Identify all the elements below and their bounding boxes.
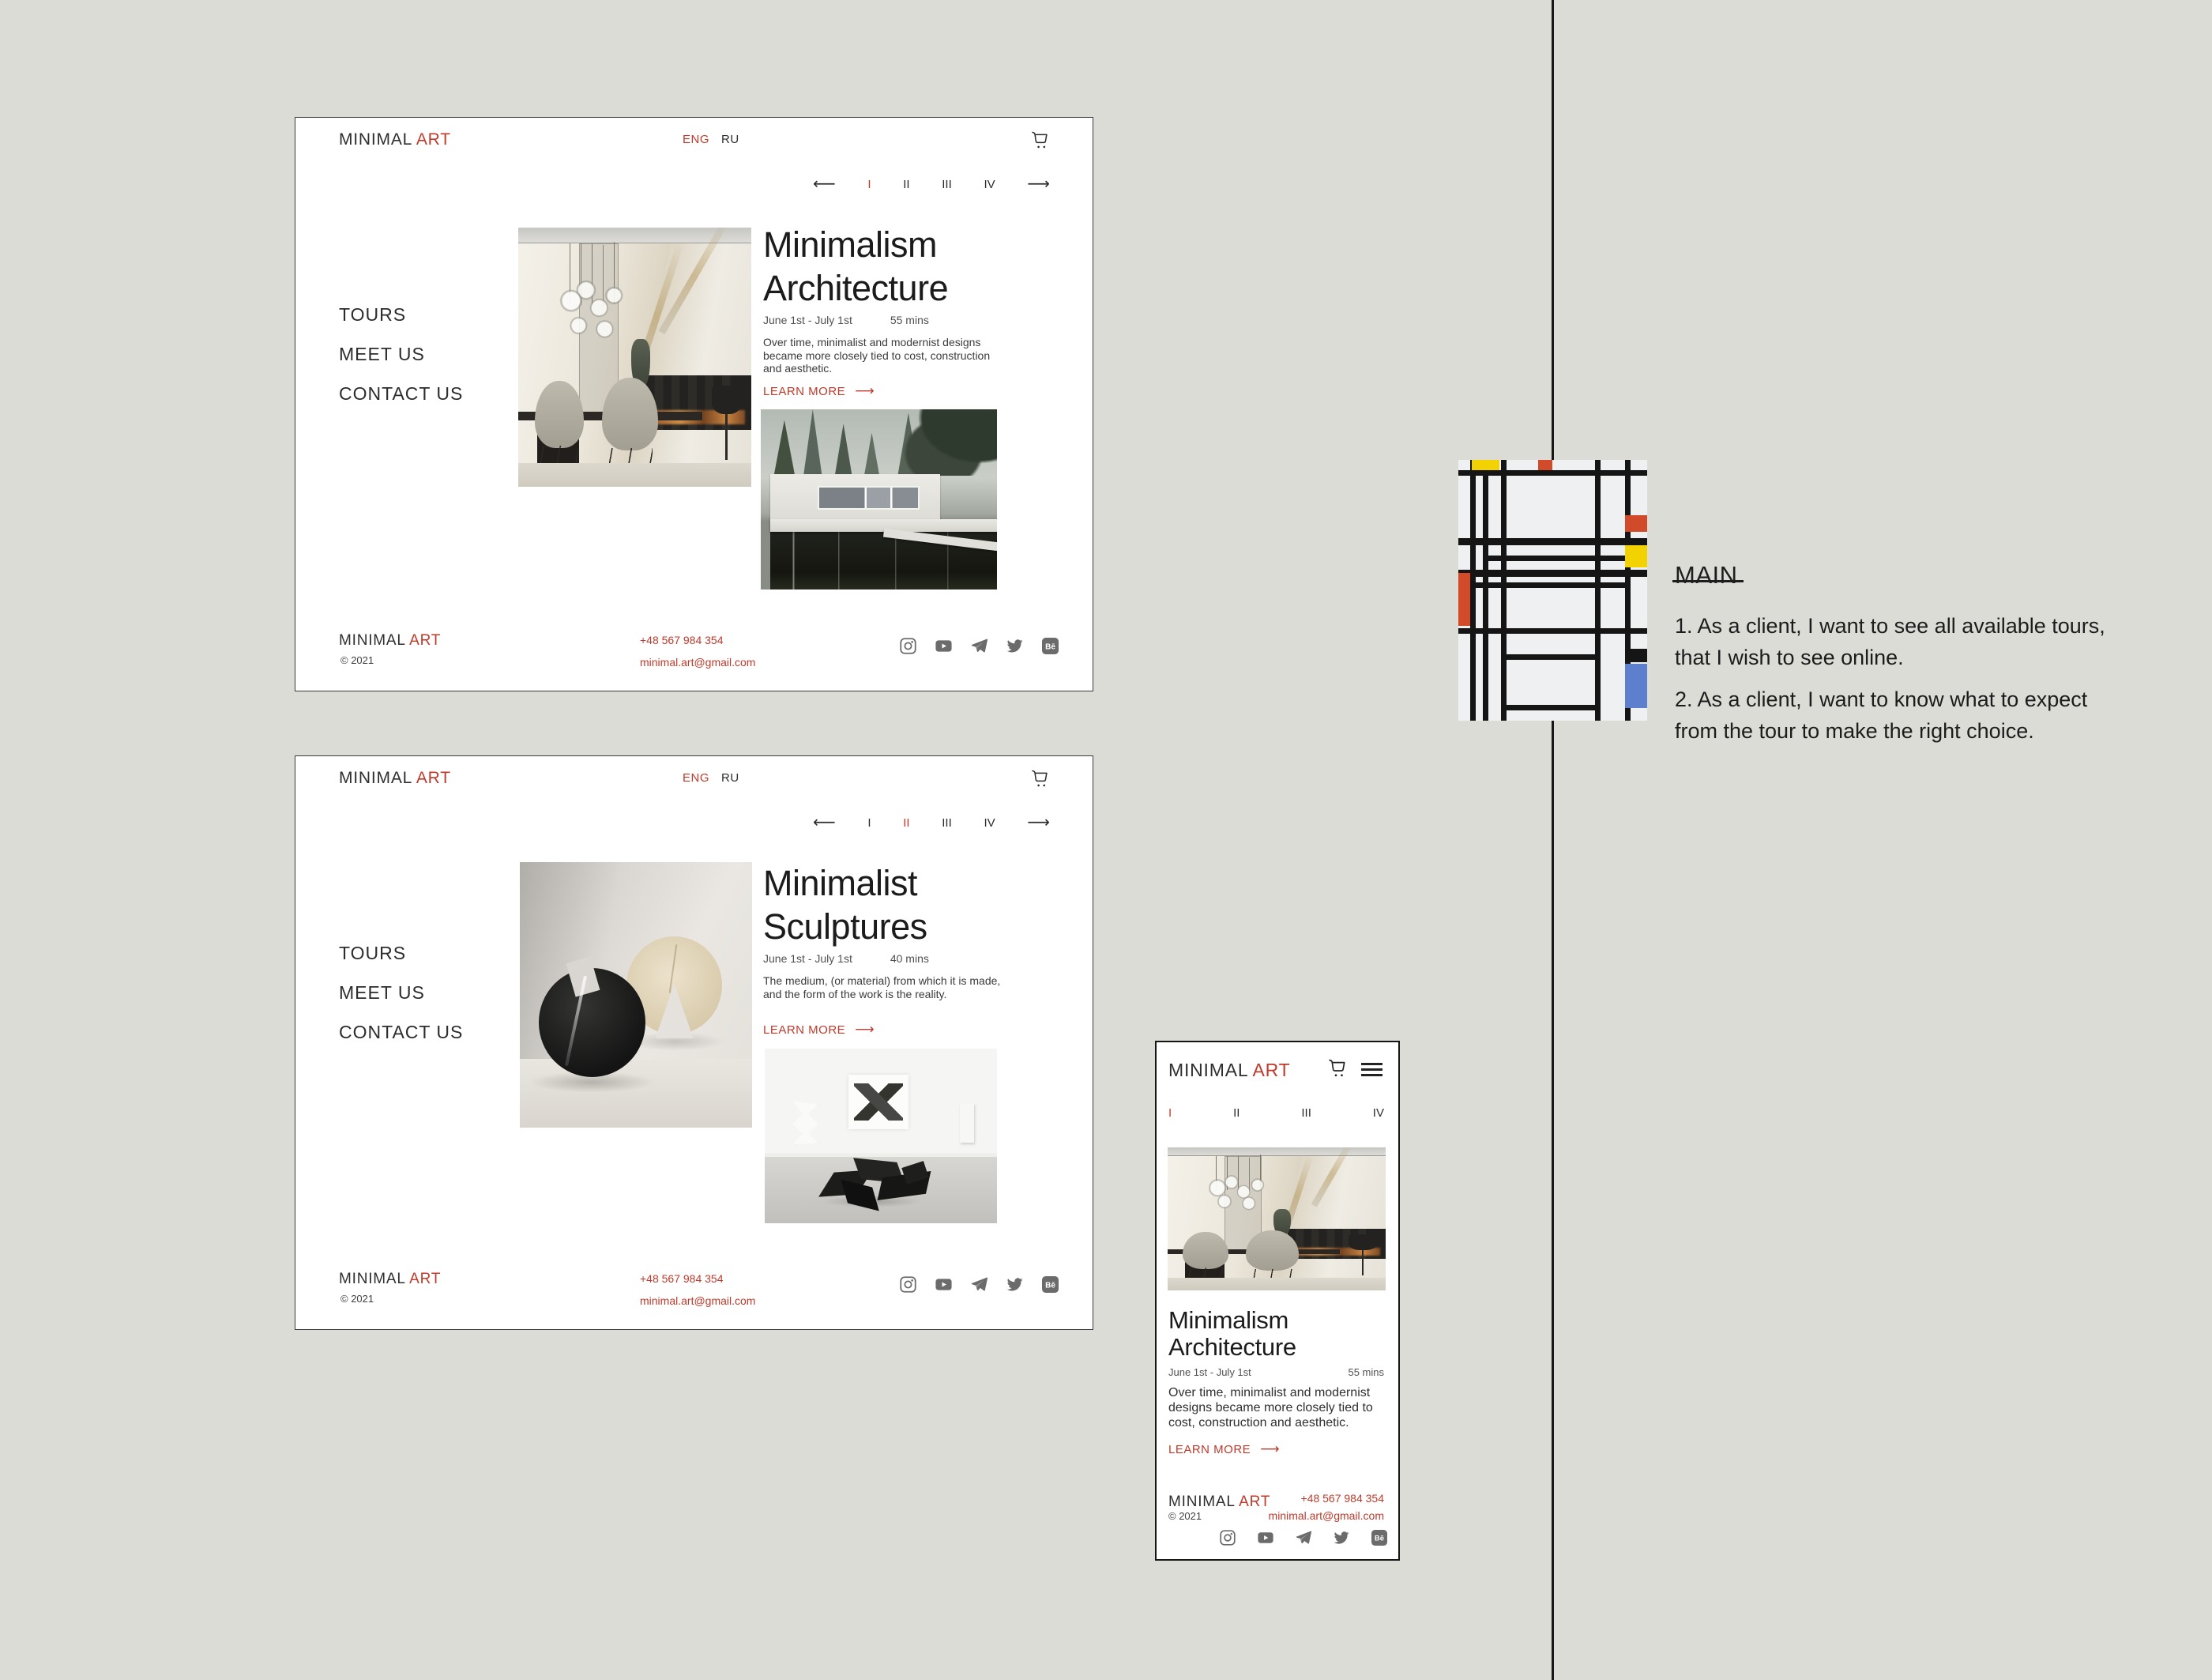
nav-contact-us[interactable]: CONTACT US	[339, 383, 463, 405]
svg-text:Bē: Bē	[1045, 1281, 1055, 1290]
menu-icon[interactable]	[1361, 1063, 1382, 1076]
svg-text:Bē: Bē	[1375, 1535, 1384, 1543]
page-title: Minimalist Sculptures	[763, 861, 927, 948]
tour-meta: June 1st - July 1st 40 mins	[763, 952, 929, 965]
stool-shape	[712, 386, 742, 414]
painting-orange-block	[1625, 515, 1647, 532]
footer-logo: MINIMAL ART	[339, 1271, 441, 1288]
desktop-mockup-sculptures: MINIMAL ART ENG RU ⟵ I II III IV ⟶ TOURS…	[295, 755, 1093, 1330]
stool-shape	[1349, 1234, 1377, 1250]
learn-more-link[interactable]: LEARN MORE⟶	[1168, 1441, 1280, 1457]
instagram-icon[interactable]	[1220, 1530, 1236, 1546]
logo-primary: MINIMAL	[339, 130, 412, 149]
black-disc-shape	[539, 968, 645, 1077]
cart-icon[interactable]	[1030, 769, 1051, 789]
logo-accent: ART	[416, 130, 451, 149]
nav-tours[interactable]: TOURS	[339, 943, 463, 964]
email-link[interactable]: minimal.art@gmail.com	[640, 656, 755, 669]
chandelier-shape	[551, 274, 644, 363]
instagram-icon[interactable]	[900, 1276, 916, 1293]
wall-artwork-shape	[848, 1075, 908, 1129]
page-iv[interactable]: IV	[984, 178, 995, 191]
date-range: June 1st - July 1st	[1168, 1366, 1251, 1378]
page-ii[interactable]: II	[903, 178, 909, 191]
copyright: © 2021	[340, 1293, 374, 1305]
user-story-1: 1. As a client, I want to see all availa…	[1675, 610, 2129, 673]
user-story-2: 2. As a client, I want to know what to e…	[1675, 684, 2129, 747]
telegram-icon[interactable]	[971, 1276, 987, 1293]
chair-shape	[535, 381, 584, 448]
description: Over time, minimalist and modernist desi…	[763, 336, 1010, 375]
painting-black-block	[1625, 649, 1647, 662]
interior-photo	[1168, 1147, 1386, 1290]
chair-shape	[1183, 1232, 1228, 1269]
youtube-icon[interactable]	[1258, 1530, 1273, 1546]
chandelier-shape	[1198, 1173, 1285, 1222]
copyright: © 2021	[340, 654, 374, 666]
lang-ru[interactable]: RU	[721, 771, 739, 785]
site-logo[interactable]: MINIMAL ART	[1168, 1060, 1291, 1081]
behance-icon[interactable]: Bē	[1042, 1276, 1059, 1293]
note-heading: MAIN	[1675, 561, 2149, 590]
description: Over time, minimalist and modernist desi…	[1168, 1385, 1388, 1430]
twitter-icon[interactable]	[1006, 1276, 1023, 1293]
phone-link[interactable]: +48 567 984 354	[1301, 1492, 1385, 1505]
page-iii[interactable]: III	[942, 178, 952, 191]
page-i[interactable]: I	[867, 816, 871, 830]
svg-text:Bē: Bē	[1045, 642, 1055, 651]
sculpture-photo	[520, 862, 752, 1128]
nav-contact-us[interactable]: CONTACT US	[339, 1022, 463, 1043]
cart-icon[interactable]	[1030, 130, 1051, 150]
language-switcher: ENG RU	[683, 133, 739, 146]
duration: 55 mins	[890, 314, 929, 326]
logo-accent: ART	[416, 769, 451, 787]
artboard-canvas: MINIMAL ART ENG RU ⟵ I II III IV ⟶ TOURS…	[0, 0, 2212, 1680]
behance-icon[interactable]: Bē	[1371, 1530, 1387, 1546]
chair-shape	[1246, 1230, 1298, 1271]
slide-pagination: ⟵ I II III IV ⟶	[813, 816, 1050, 830]
pillar-shape	[960, 1103, 974, 1143]
main-nav: TOURS MEET US CONTACT US	[339, 304, 463, 423]
tour-meta: June 1st - July 1st 55 mins	[763, 314, 929, 326]
gallery-photo	[765, 1049, 997, 1223]
logo-primary: MINIMAL	[1168, 1060, 1248, 1080]
painting-red-block	[1458, 573, 1470, 626]
youtube-icon[interactable]	[935, 638, 952, 654]
slide-pagination: I II III IV	[1168, 1106, 1384, 1120]
house-photo	[761, 409, 997, 590]
canvas-divider-line	[1552, 0, 1554, 1680]
twitter-icon[interactable]	[1334, 1530, 1349, 1546]
prev-arrow-icon[interactable]: ⟵	[813, 816, 836, 830]
twitter-icon[interactable]	[1006, 638, 1023, 654]
phone-link[interactable]: +48 567 984 354	[640, 634, 724, 646]
next-arrow-icon[interactable]: ⟶	[1027, 816, 1050, 830]
copyright: © 2021	[1168, 1510, 1202, 1522]
nav-meet-us[interactable]: MEET US	[339, 982, 463, 1004]
house-shape	[770, 474, 940, 519]
design-note: MAIN 1. As a client, I want to see all a…	[1675, 561, 2149, 747]
cart-icon[interactable]	[1327, 1058, 1349, 1079]
telegram-icon[interactable]	[971, 638, 987, 654]
arrow-right-icon: ⟶	[855, 1022, 875, 1037]
nav-tours[interactable]: TOURS	[339, 304, 463, 326]
mondrian-painting	[1458, 460, 1647, 721]
date-range: June 1st - July 1st	[763, 314, 852, 326]
duration: 40 mins	[890, 952, 929, 965]
language-switcher: ENG RU	[683, 771, 739, 785]
youtube-icon[interactable]	[935, 1276, 952, 1293]
page-iv[interactable]: IV	[1373, 1106, 1384, 1120]
lang-eng[interactable]: ENG	[683, 771, 709, 785]
footer-logo: MINIMAL ART	[1168, 1494, 1270, 1511]
page-iii[interactable]: III	[942, 816, 952, 830]
main-nav: TOURS MEET US CONTACT US	[339, 943, 463, 1061]
social-links: Bē	[900, 638, 1059, 654]
arrow-right-icon: ⟶	[1260, 1441, 1280, 1456]
duration: 55 mins	[1348, 1366, 1384, 1378]
mobile-mockup-architecture: MINIMAL ART I II III IV	[1155, 1041, 1400, 1561]
lang-eng[interactable]: ENG	[683, 133, 709, 146]
page-iii[interactable]: III	[1301, 1106, 1311, 1120]
learn-more-link[interactable]: LEARN MORE⟶	[763, 383, 875, 399]
email-link[interactable]: minimal.art@gmail.com	[640, 1294, 755, 1307]
social-links: Bē	[900, 1276, 1059, 1293]
page-title: Minimalism Architecture	[763, 223, 948, 310]
page-ii[interactable]: II	[903, 816, 909, 830]
foliage-shape	[902, 409, 997, 476]
page-i[interactable]: I	[867, 178, 871, 191]
next-arrow-icon[interactable]: ⟶	[1027, 178, 1050, 191]
painting-blue-block	[1625, 664, 1647, 708]
desktop-mockup-architecture: MINIMAL ART ENG RU ⟵ I II III IV ⟶ TOURS…	[295, 117, 1093, 691]
footer-logo: MINIMAL ART	[339, 632, 441, 650]
white-sculpture-shape	[792, 1101, 818, 1144]
interior-photo	[518, 228, 751, 487]
tour-meta: June 1st - July 1st 55 mins	[1168, 1366, 1384, 1378]
arrow-right-icon: ⟶	[855, 383, 875, 398]
behance-icon[interactable]: Bē	[1042, 638, 1059, 654]
prev-arrow-icon[interactable]: ⟵	[813, 178, 836, 191]
painting-yellow-block	[1625, 545, 1647, 567]
date-range: June 1st - July 1st	[763, 952, 852, 965]
slide-pagination: ⟵ I II III IV ⟶	[813, 178, 1050, 191]
description: The medium, (or material) from which it …	[763, 974, 1010, 1000]
page-ii[interactable]: II	[1233, 1106, 1240, 1120]
logo-primary: MINIMAL	[339, 769, 412, 787]
site-logo[interactable]: MINIMAL ART	[339, 130, 451, 149]
social-links: Bē	[1220, 1530, 1387, 1546]
site-logo[interactable]: MINIMAL ART	[339, 769, 451, 788]
telegram-icon[interactable]	[1296, 1530, 1311, 1546]
email-link[interactable]: minimal.art@gmail.com	[1269, 1509, 1384, 1522]
page-i[interactable]: I	[1168, 1106, 1172, 1120]
instagram-icon[interactable]	[900, 638, 916, 654]
page-title: Minimalism Architecture	[1168, 1307, 1296, 1361]
logo-accent: ART	[1253, 1060, 1291, 1080]
page-iv[interactable]: IV	[984, 816, 995, 830]
phone-link[interactable]: +48 567 984 354	[640, 1272, 724, 1285]
nav-meet-us[interactable]: MEET US	[339, 344, 463, 365]
painting-red-block	[1538, 460, 1552, 470]
painting-yellow-block	[1472, 460, 1499, 470]
lang-ru[interactable]: RU	[721, 133, 739, 146]
learn-more-link[interactable]: LEARN MORE⟶	[763, 1022, 875, 1038]
